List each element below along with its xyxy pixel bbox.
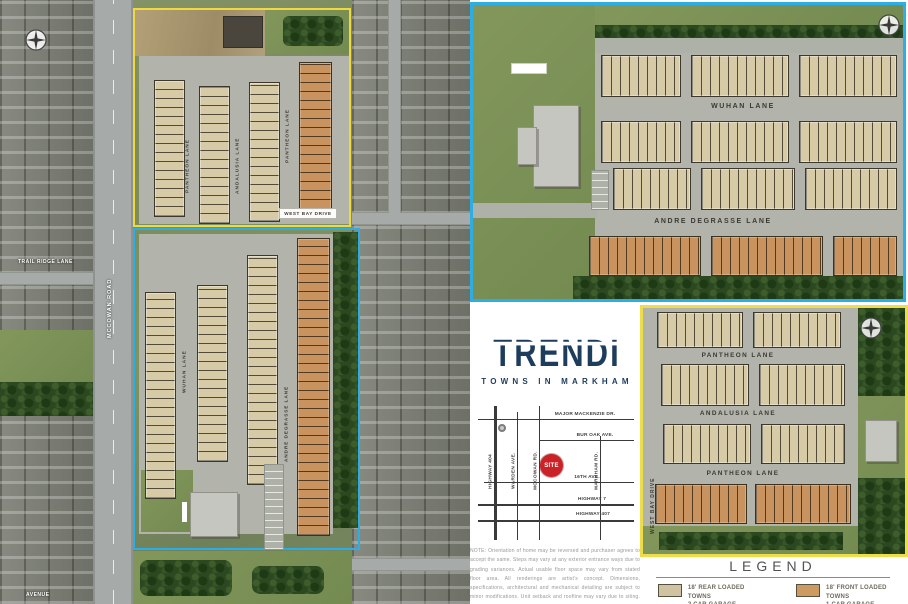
- pantheon-lane-label-west: PANTHEON LANE: [182, 128, 194, 204]
- warden-ave-label: WARDEN AVE.: [509, 442, 519, 500]
- legend: LEGEND 18' REAR LOADED TOWNS 2 CAR GARAG…: [642, 558, 904, 604]
- townhouse-block-rear: [247, 255, 278, 485]
- highway-407-label: HIGHWAY 407: [562, 511, 624, 518]
- andre-degrasse-lane-label: ANDRE DEGRASSE LANE: [280, 376, 292, 472]
- compass-icon: [859, 316, 883, 340]
- entry-driveway: [473, 203, 597, 218]
- townhouse-row-rear: [701, 168, 795, 210]
- residential-east: [352, 0, 470, 604]
- andre-degrasse-lane-label: ANDRE DEGRASSE LANE: [623, 215, 803, 227]
- west-bay-drive-label: WEST BAY DRIVE: [279, 208, 337, 219]
- disclaimer-note: NOTE: Orientation of home may be reverse…: [470, 547, 640, 601]
- north-block-plan-panel: WUHAN LANE ANDRE DEGRASSE LANE: [470, 2, 906, 302]
- plan-trees-bottom: [659, 532, 843, 550]
- townhouse-block-rear: [145, 292, 176, 499]
- south-block-plan-panel: PANTHEON LANE ANDALUSIA LANE PANTHEON LA…: [640, 305, 908, 557]
- parking-stalls: [264, 464, 284, 550]
- townhouse-block-rear: [249, 82, 280, 222]
- townhouse-row-rear: [691, 55, 789, 97]
- fire-hall-label-chip: [182, 502, 187, 522]
- compass-icon: [877, 13, 901, 37]
- aerial-trees-east-bottom: [858, 478, 905, 554]
- mccowan-rd-label: MCCOWAN RD.: [531, 442, 541, 500]
- townhouse-row-rear: [663, 424, 751, 464]
- townhouse-row-front: [833, 236, 897, 276]
- existing-building-east: [865, 420, 897, 462]
- legend-title: LEGEND: [642, 558, 904, 574]
- legend-label-rear-line1: 18' REAR LOADED TOWNS: [688, 584, 762, 601]
- avenue-label: AVENUE: [26, 592, 49, 598]
- highway-404-label: HIGHWAY 404: [486, 442, 496, 500]
- west-bay-drive-label: WEST BAY DRIVE: [647, 464, 659, 548]
- townhouse-block-rear: [197, 285, 228, 462]
- plan-trees-bottom: [573, 276, 903, 299]
- south-trees-2: [252, 566, 324, 594]
- south-street-east: [352, 558, 470, 571]
- townhouse-row-rear: [661, 364, 749, 406]
- west-bay-drive-east: [352, 212, 470, 225]
- trees-west: [0, 382, 93, 416]
- townhouse-row-rear: [601, 55, 681, 97]
- andalusia-lane-label: ANDALUSIA LANE: [673, 408, 803, 419]
- andalusia-lane-label: ANDALUSIA LANE: [232, 122, 244, 210]
- townhouse-row-rear: [691, 121, 789, 163]
- townhouse-row-rear: [613, 168, 691, 210]
- legend-swatch-front: [796, 584, 820, 597]
- townhouse-block-rear: [199, 86, 230, 224]
- townhouse-row-rear: [799, 55, 897, 97]
- interchange-dot: [498, 424, 506, 432]
- aerial-overview-panel: TRAIL RIDGE LANE MCCOWAN ROAD AVENUE PAN…: [0, 0, 470, 604]
- mccowan-road-label: MCCOWAN ROAD: [107, 262, 113, 338]
- legend-item-front-loaded: 18' FRONT LOADED TOWNS 1 CAR GARAGE: [796, 584, 904, 604]
- fire-hall-building: [190, 492, 238, 537]
- highway-7-line: [478, 504, 634, 506]
- trail-ridge-lane-road: [0, 272, 93, 285]
- residential-west: [0, 0, 93, 604]
- townhouse-row-rear: [761, 424, 845, 464]
- south-trees-1: [140, 560, 232, 596]
- legend-item-rear-loaded: 18' REAR LOADED TOWNS 2 CAR GARAGE: [658, 584, 762, 604]
- location-map: MAJOR MACKENZIE DR. BUR OAK AVE. 16TH AV…: [478, 406, 634, 540]
- townhouse-row-rear: [759, 364, 845, 406]
- pantheon-lane-label-bottom: PANTHEON LANE: [678, 468, 808, 479]
- major-mackenzie-label: MAJOR MACKENZIE DR.: [538, 411, 632, 418]
- townhouse-row-rear: [799, 121, 897, 163]
- south-site-trees-east: [333, 232, 358, 528]
- bur-oak-label: BUR OAK AVE.: [562, 432, 628, 439]
- townhouse-block-rear: [154, 80, 185, 217]
- townhouse-row-front: [589, 236, 701, 276]
- wuhan-lane-label: WUHAN LANE: [179, 342, 191, 402]
- highway-407-line: [478, 520, 634, 522]
- major-mackenzie-line: [478, 419, 634, 420]
- brand-tagline: TOWNS IN MARKHAM: [470, 377, 644, 386]
- parking-stalls: [591, 170, 609, 210]
- plan-trees-top: [595, 25, 903, 38]
- pantheon-lane-label-top: PANTHEON LANE: [673, 350, 803, 361]
- south-site-outline: WUHAN LANE ANDRE DEGRASSE LANE: [133, 228, 360, 550]
- compass-icon: [24, 28, 48, 52]
- townhouse-row-front: [711, 236, 823, 276]
- legend-label-front-line1: 18' FRONT LOADED TOWNS: [826, 584, 904, 601]
- place-of-worship-building: [533, 105, 579, 187]
- townhouse-row-rear: [805, 168, 897, 210]
- townhouse-row-front: [755, 484, 851, 524]
- trail-ridge-lane-label: TRAIL RIDGE LANE: [18, 259, 73, 265]
- townhouse-row-rear: [657, 312, 743, 348]
- sixteenth-ave-line: [484, 482, 634, 483]
- lawn-west: [0, 330, 93, 382]
- sixteenth-ave-label: 16TH AVE.: [562, 474, 612, 481]
- townhouse-block-front: [297, 238, 330, 536]
- townhouse-block-front: [299, 62, 332, 210]
- north-site-outline: PANTHEON LANE ANDALUSIA LANE PANTHEON LA…: [133, 8, 351, 227]
- north-site-trees-top: [283, 16, 343, 46]
- townhouse-row-front: [655, 484, 747, 524]
- wuhan-lane-label: WUHAN LANE: [673, 100, 813, 112]
- vertical-street-east: [388, 0, 401, 213]
- building-label-chip: [511, 63, 547, 74]
- top-boundary-road: [595, 38, 903, 53]
- legend-rule: [656, 577, 890, 578]
- trendi-logo: TRENDI: [493, 332, 620, 376]
- mccowan-road: [93, 0, 133, 604]
- site-plan-sheet: TRAIL RIDGE LANE MCCOWAN ROAD AVENUE PAN…: [0, 0, 908, 604]
- bur-oak-line: [539, 440, 634, 441]
- existing-house-roof: [223, 16, 263, 48]
- brand-block: TRENDI: [474, 332, 640, 368]
- markham-rd-label: MARKHAM RD.: [592, 442, 602, 500]
- place-of-worship-wing: [517, 127, 537, 165]
- site-marker: SITE: [540, 454, 563, 477]
- pantheon-lane-label-east: PANTHEON LANE: [282, 98, 294, 174]
- townhouse-row-rear: [601, 121, 681, 163]
- townhouse-row-rear: [753, 312, 841, 348]
- legend-swatch-rear: [658, 584, 682, 597]
